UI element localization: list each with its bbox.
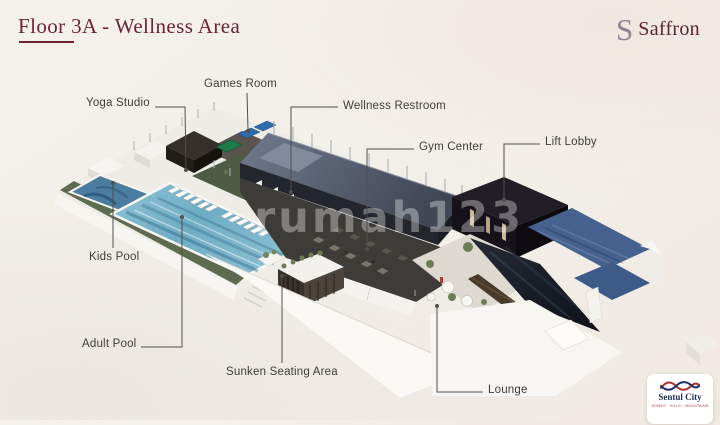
- label-lounge: Lounge: [488, 384, 528, 396]
- developer-name: Sentul City: [658, 393, 701, 403]
- label-adult-pool: Adult Pool: [82, 338, 136, 350]
- label-lift-lobby: Lift Lobby: [545, 136, 597, 148]
- page-title: Floor 3A - Wellness Area: [18, 14, 240, 39]
- label-gym-center: Gym Center: [419, 141, 483, 153]
- developer-tagline: HOMES · HILLS · MOUNTAINS: [651, 404, 708, 408]
- saffron-brand-name: Saffron: [638, 18, 700, 41]
- presentation-slide: { "slide": { "title": "Floor 3A - Wellne…: [0, 0, 720, 420]
- sentul-city-waves-icon: [659, 379, 701, 392]
- callout-labels: Yoga StudioGames RoomWellness RestroomGy…: [0, 0, 720, 420]
- saffron-logo: S Saffron: [616, 14, 700, 45]
- label-sunken-seating-area: Sunken Seating Area: [226, 366, 338, 378]
- label-yoga-studio: Yoga Studio: [86, 97, 150, 109]
- label-wellness-restroom: Wellness Restroom: [343, 100, 446, 112]
- label-games-room: Games Room: [204, 78, 277, 90]
- sentul-city-logo-card: Sentul City HOMES · HILLS · MOUNTAINS: [647, 374, 713, 424]
- saffron-monogram-icon: S: [616, 14, 633, 45]
- label-kids-pool: Kids Pool: [89, 251, 139, 263]
